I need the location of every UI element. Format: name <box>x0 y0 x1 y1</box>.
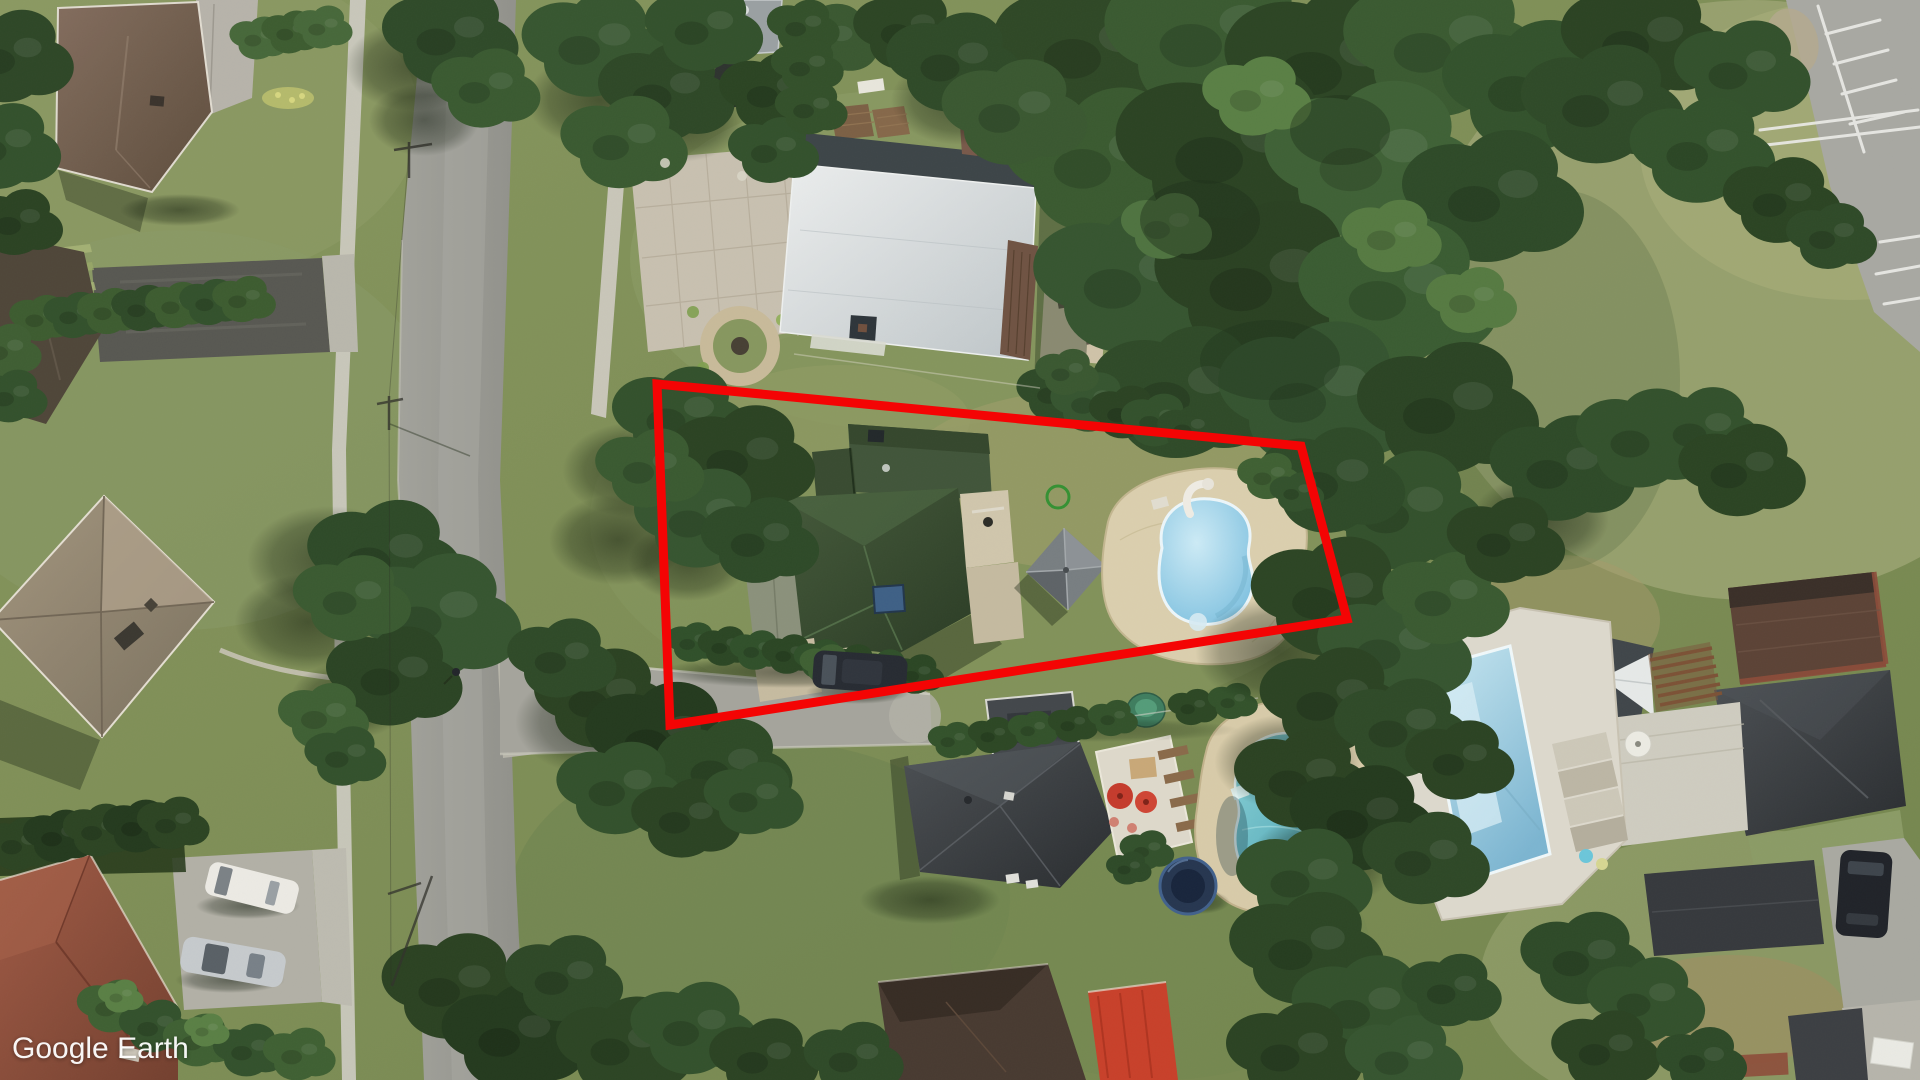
google-earth-watermark: Google Earth <box>12 1032 189 1066</box>
satellite-canvas[interactable] <box>0 0 1920 1080</box>
aerial-imagery <box>0 0 1920 1080</box>
photo-grain <box>0 0 1920 1080</box>
google-earth-viewport[interactable]: Google Earth <box>0 0 1920 1080</box>
